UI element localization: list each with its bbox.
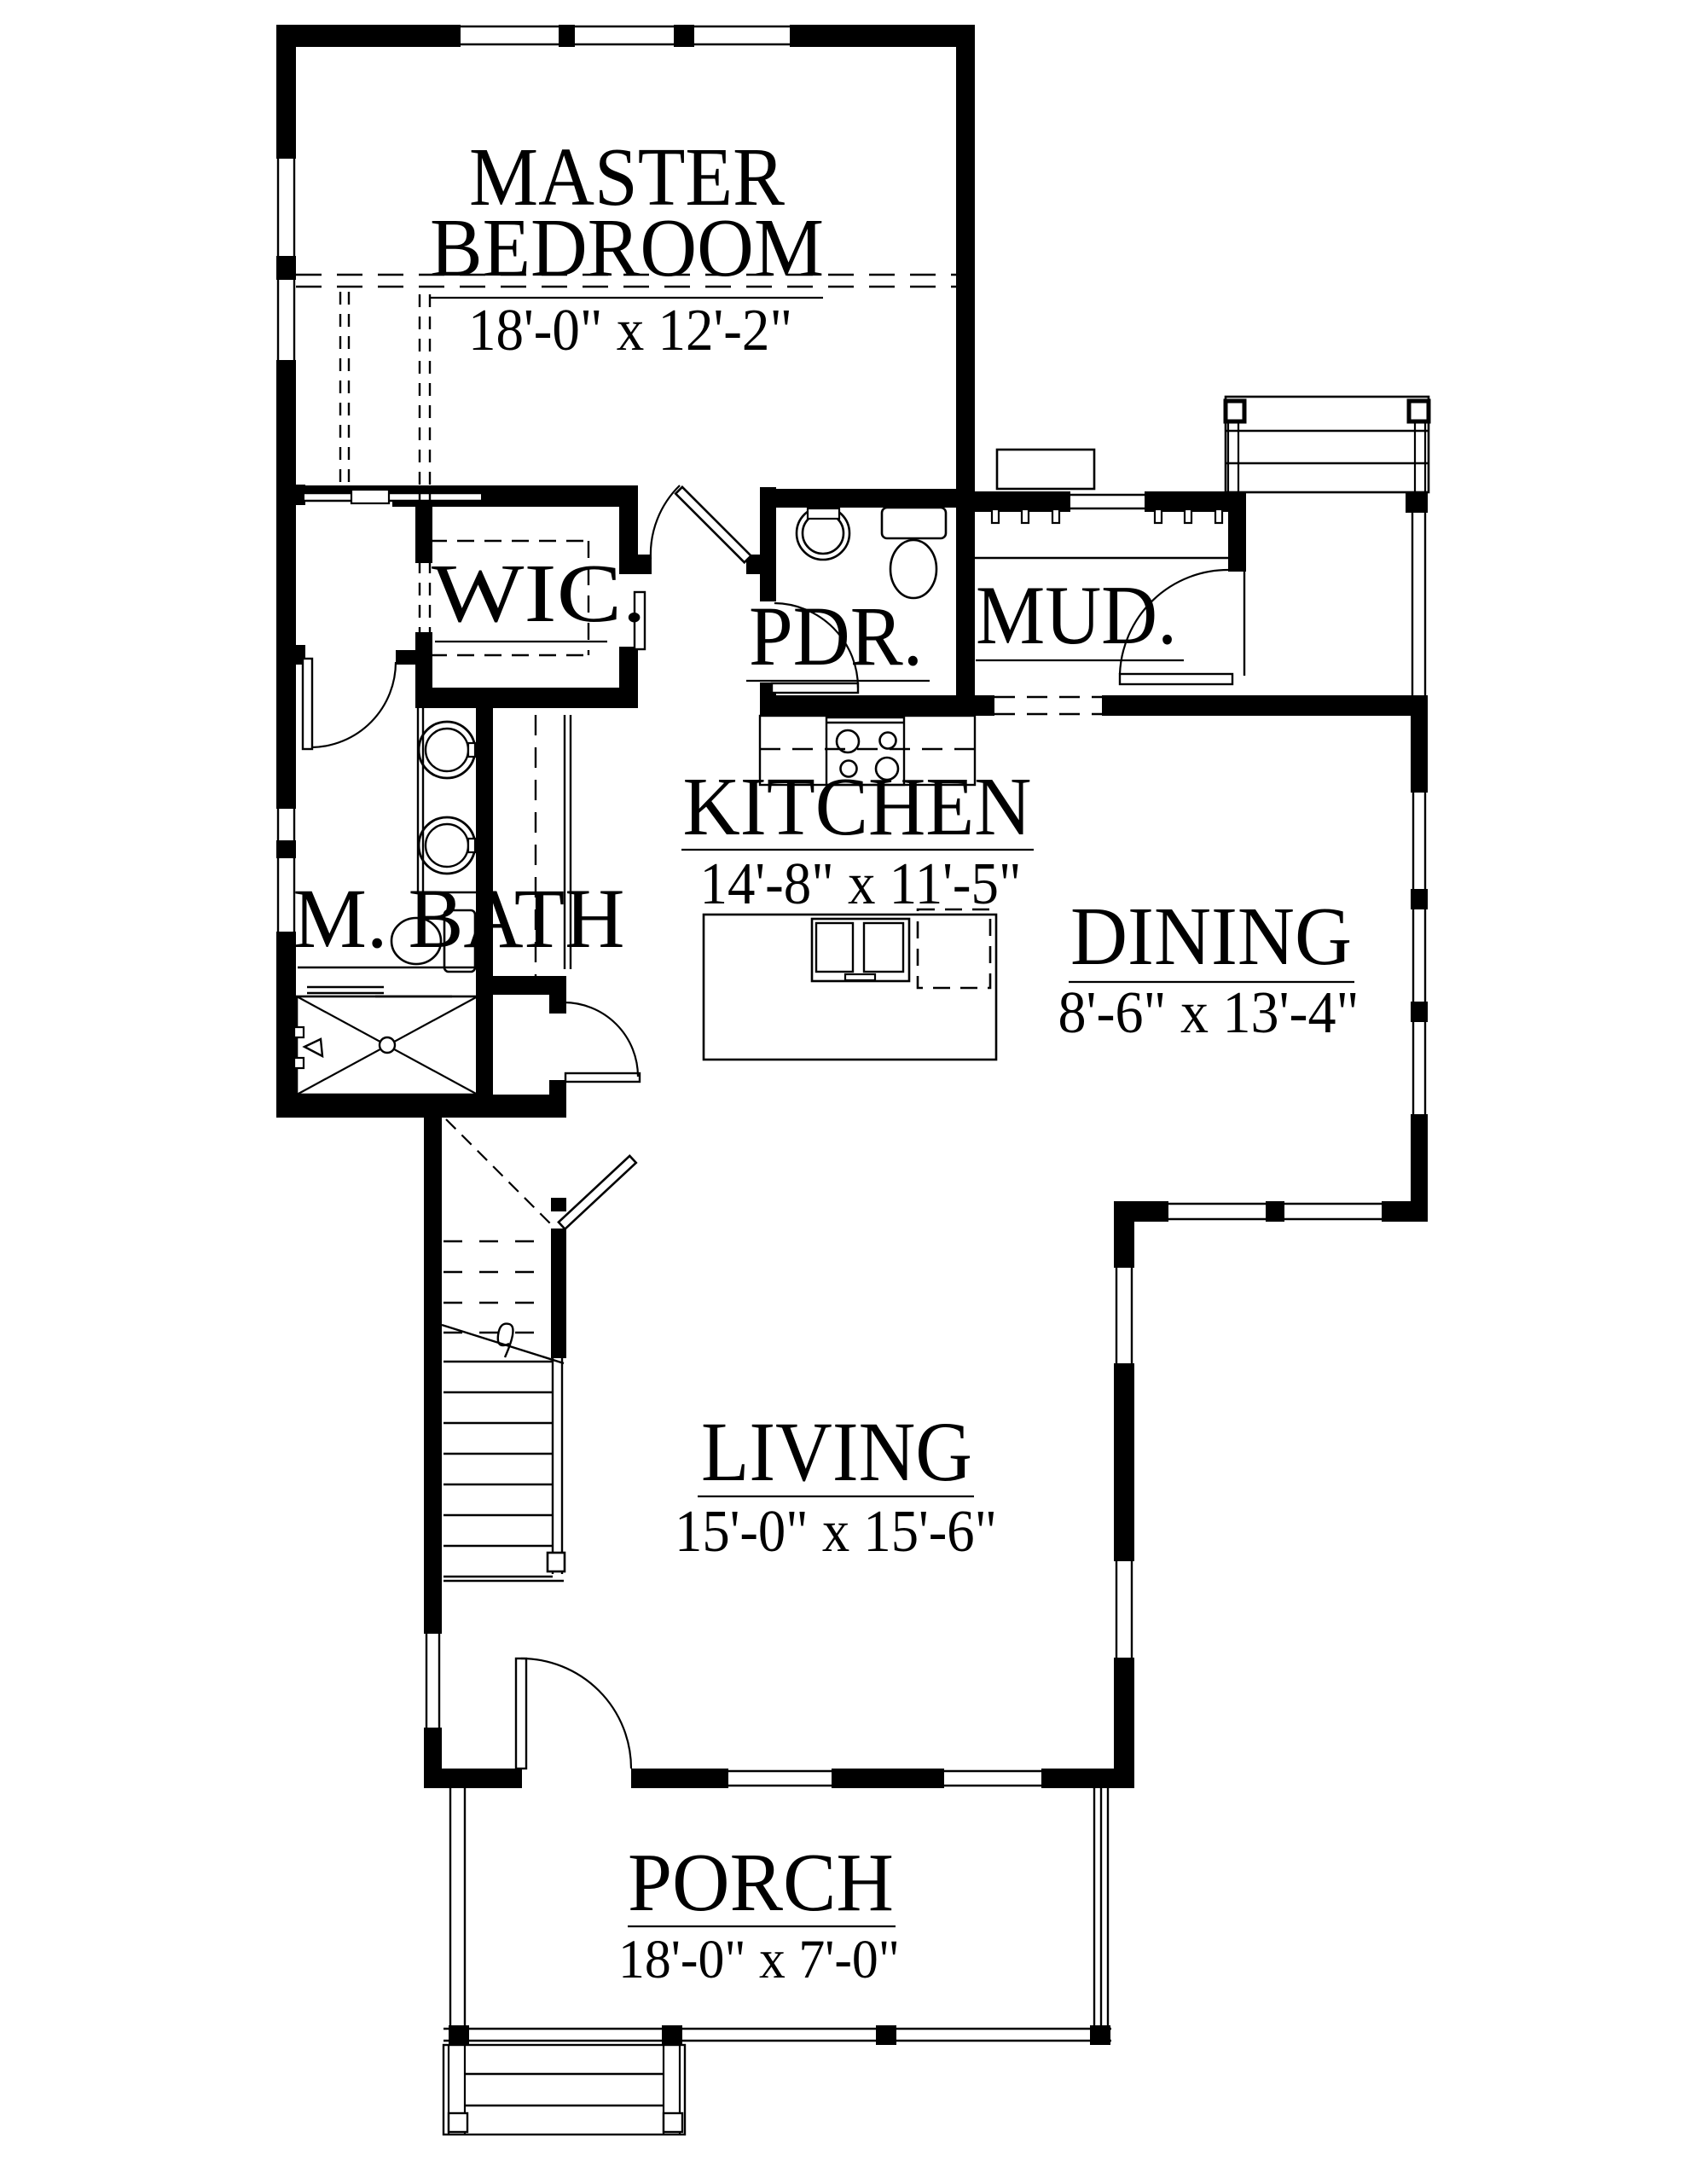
- svg-text:8'-6" x 13'-4": 8'-6" x 13'-4": [1058, 980, 1359, 1046]
- svg-text:18'-0" x 7'-0": 18'-0" x 7'-0": [618, 1929, 900, 1990]
- svg-text:BEDROOM: BEDROOM: [430, 202, 824, 294]
- svg-text:MUD.: MUD.: [976, 569, 1177, 662]
- svg-text:LIVING: LIVING: [701, 1404, 972, 1499]
- svg-text:14'-8" x 11'-5": 14'-8" x 11'-5": [700, 851, 1022, 917]
- svg-text:M. BATH: M. BATH: [293, 871, 625, 966]
- svg-text:PDR.: PDR.: [749, 589, 923, 683]
- svg-text:WIC.: WIC.: [432, 548, 646, 640]
- svg-text:PORCH: PORCH: [628, 1837, 894, 1929]
- svg-text:18'-0" x 12'-2": 18'-0" x 12'-2": [468, 298, 792, 363]
- svg-text:KITCHEN: KITCHEN: [683, 761, 1032, 853]
- svg-text:15'-0" x 15'-6": 15'-0" x 15'-6": [675, 1499, 997, 1565]
- svg-text:DINING: DINING: [1070, 891, 1352, 983]
